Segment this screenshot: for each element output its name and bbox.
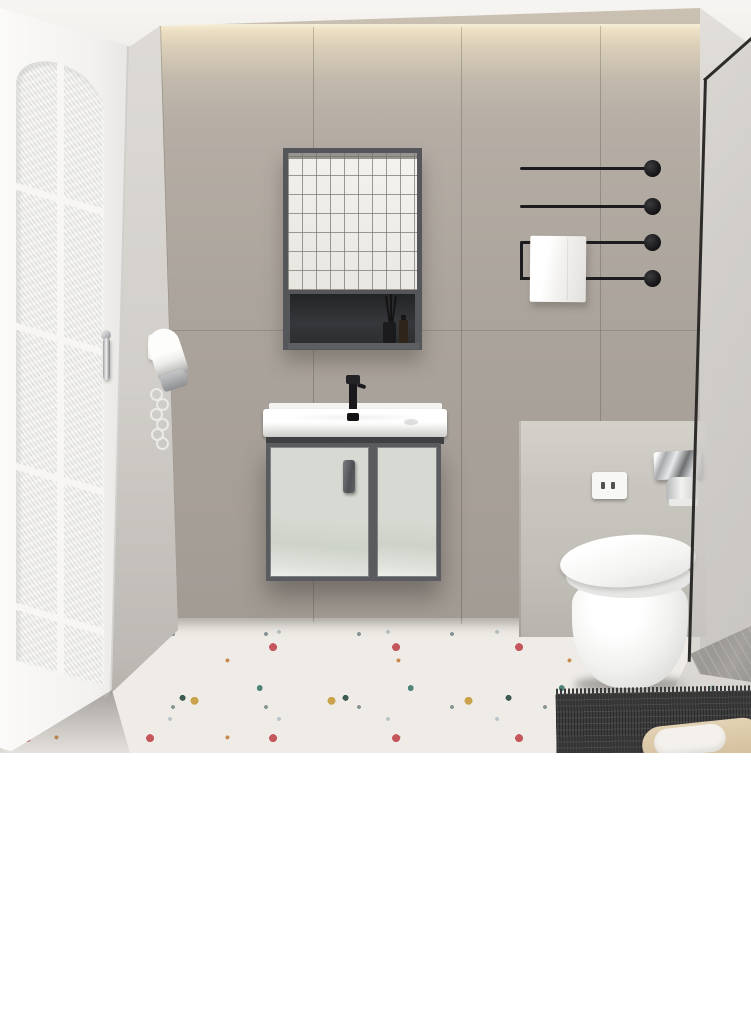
towel-bar-1 [520,167,648,170]
towel-rack-post [520,242,523,280]
wall-seam-vertical-2 [461,27,462,624]
towel-bar-mount-1 [644,160,661,177]
faucet-lever [357,383,367,390]
reed-diffuser-bottle [383,322,396,343]
towel-bar-mount-2 [644,198,661,215]
faucet-spout [347,413,359,421]
hanging-towel [530,236,587,302]
toilet [558,530,700,695]
product-listing-image: OS290042 Size; 500*360mm Aluminium [0,0,751,1024]
dryer-cord-coil [156,437,169,450]
product-caption: OS290042 Size; 500*360mm Aluminium [0,753,751,1024]
bathroom-photo [0,0,751,753]
basin-overflow [404,419,418,425]
towel-fold [567,238,569,300]
frosted-glass-panes [16,51,104,687]
grid-mirror [288,153,417,290]
flush-button-large [611,482,615,489]
led-cove-glow [160,24,706,134]
vanity-door-right [377,447,437,577]
shelf-lip [288,343,419,349]
shelf-bottle [399,320,408,343]
vanity-handle [343,460,355,493]
wall-seam-horizontal [160,330,703,331]
flush-plate [592,472,627,499]
towel-bar-2 [520,205,648,208]
door-handle-lever [103,338,110,380]
glass-muntin-vertical [57,63,64,675]
flush-button-small [601,482,605,489]
cabinet-open-shelf [290,294,415,343]
slipper-fluff [653,723,728,753]
towel-bar-mount-3 [644,234,661,251]
towel-bar-mount-4 [644,270,661,287]
